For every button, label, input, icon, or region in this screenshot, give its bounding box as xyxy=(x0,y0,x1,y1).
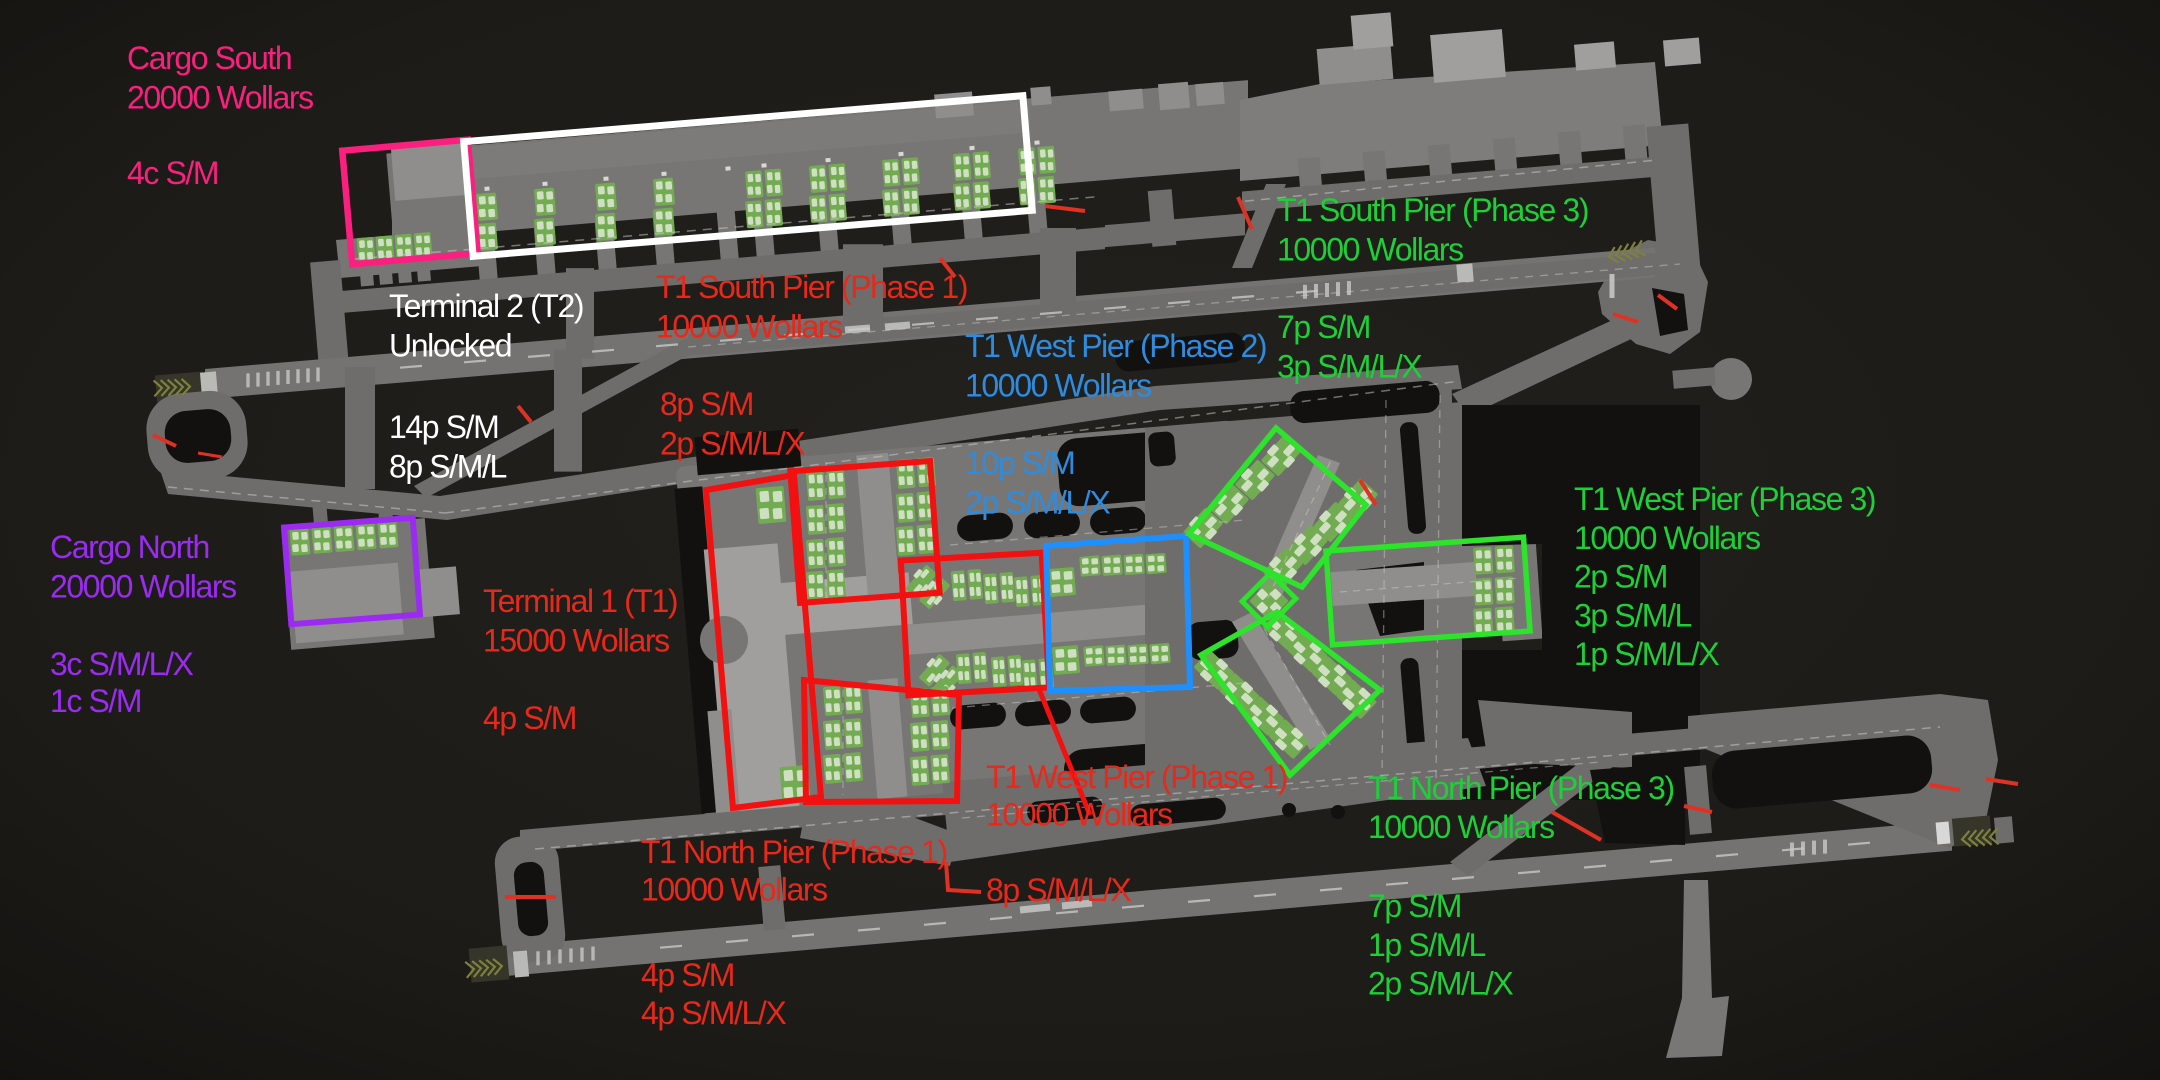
svg-text:4p S/M: 4p S/M xyxy=(641,957,734,993)
svg-text:T1 South Pier (Phase 1): T1 South Pier (Phase 1) xyxy=(656,269,967,305)
svg-text:20000 Wollars: 20000 Wollars xyxy=(50,568,236,604)
svg-text:10000 Wollars: 10000 Wollars xyxy=(1277,231,1463,267)
svg-text:10p S/M: 10p S/M xyxy=(965,445,1074,481)
svg-text:10000 Wollars: 10000 Wollars xyxy=(656,308,842,344)
svg-text:15000 Wollars: 15000 Wollars xyxy=(483,622,669,658)
svg-text:Terminal 2 (T2): Terminal 2 (T2) xyxy=(389,288,583,324)
svg-text:4c S/M: 4c S/M xyxy=(127,155,218,191)
svg-text:10000 Wollars: 10000 Wollars xyxy=(1574,520,1760,556)
svg-text:3p S/M/L: 3p S/M/L xyxy=(1574,597,1691,633)
svg-text:20000 Wollars: 20000 Wollars xyxy=(127,79,313,115)
svg-text:2p S/M/L/X: 2p S/M/L/X xyxy=(1368,966,1513,1002)
svg-text:7p S/M: 7p S/M xyxy=(1368,888,1461,924)
svg-text:Cargo North: Cargo North xyxy=(50,529,209,565)
svg-text:Cargo South: Cargo South xyxy=(127,40,291,76)
svg-text:Unlocked: Unlocked xyxy=(389,327,511,363)
svg-text:14p S/M: 14p S/M xyxy=(389,409,498,445)
svg-text:T1 South Pier (Phase 3): T1 South Pier (Phase 3) xyxy=(1277,192,1588,228)
svg-text:Terminal 1 (T1): Terminal 1 (T1) xyxy=(483,583,677,619)
svg-text:4p S/M/L/X: 4p S/M/L/X xyxy=(641,995,786,1031)
svg-text:T1 North Pier (Phase 3): T1 North Pier (Phase 3) xyxy=(1368,770,1674,806)
svg-text:2p S/M: 2p S/M xyxy=(1574,559,1667,595)
svg-text:2p S/M/L/X: 2p S/M/L/X xyxy=(660,425,805,461)
svg-text:T1 West Pier (Phase 1): T1 West Pier (Phase 1) xyxy=(986,759,1287,795)
svg-text:T1 North Pier (Phase 1): T1 North Pier (Phase 1) xyxy=(641,834,947,870)
svg-text:10000 Wollars: 10000 Wollars xyxy=(986,797,1172,833)
svg-text:4p S/M: 4p S/M xyxy=(483,700,576,736)
svg-text:10000 Wollars: 10000 Wollars xyxy=(1368,809,1554,845)
svg-text:1p S/M/L: 1p S/M/L xyxy=(1368,927,1485,963)
svg-text:3c S/M/L/X: 3c S/M/L/X xyxy=(50,646,194,682)
svg-text:1c S/M: 1c S/M xyxy=(50,683,141,719)
svg-text:7p S/M: 7p S/M xyxy=(1277,309,1370,345)
svg-text:8p S/M/L/X: 8p S/M/L/X xyxy=(986,872,1131,908)
svg-text:T1 West Pier (Phase 2): T1 West Pier (Phase 2) xyxy=(965,328,1266,364)
svg-text:2p S/M/L/X: 2p S/M/L/X xyxy=(965,484,1110,520)
svg-text:10000 Wollars: 10000 Wollars xyxy=(965,367,1151,403)
svg-text:8p S/M: 8p S/M xyxy=(660,386,753,422)
svg-text:T1 West Pier (Phase 3): T1 West Pier (Phase 3) xyxy=(1574,481,1875,517)
svg-text:8p S/M/L: 8p S/M/L xyxy=(389,448,506,484)
svg-text:10000 Wollars: 10000 Wollars xyxy=(641,872,827,908)
svg-text:3p S/M/L/X: 3p S/M/L/X xyxy=(1277,348,1422,384)
svg-text:1p S/M/L/X: 1p S/M/L/X xyxy=(1574,636,1719,672)
